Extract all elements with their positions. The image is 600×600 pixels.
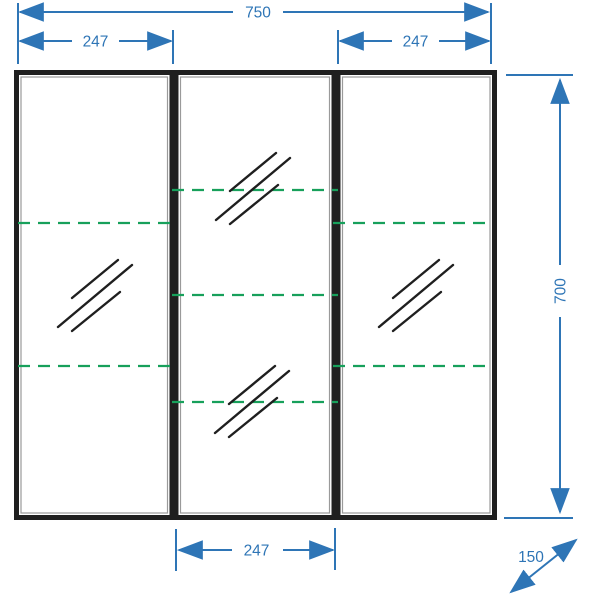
- drawing-canvas: 750 247 247 700 247: [0, 0, 600, 600]
- dim-height-label: 700: [553, 278, 570, 304]
- dim-left-door-width: 247: [20, 34, 171, 51]
- dim-total-width-label: 750: [245, 5, 271, 22]
- dim-total-width: 750: [20, 5, 488, 22]
- cabinet-body: [17, 73, 495, 518]
- dim-depth: 150: [511, 540, 576, 592]
- dim-depth-line: [511, 540, 576, 592]
- dim-depth-label: 150: [518, 549, 544, 566]
- dim-left-door-label: 247: [83, 34, 109, 51]
- dim-middle-door-width: 247: [176, 528, 335, 571]
- dim-height: 700: [504, 75, 573, 518]
- dim-right-door-label: 247: [403, 34, 429, 51]
- door-panel-left: [21, 77, 168, 513]
- dim-right-door-width: 247: [340, 34, 489, 51]
- cabinet-dimension-drawing: 750 247 247 700 247: [0, 0, 600, 600]
- dim-middle-door-label: 247: [244, 543, 270, 560]
